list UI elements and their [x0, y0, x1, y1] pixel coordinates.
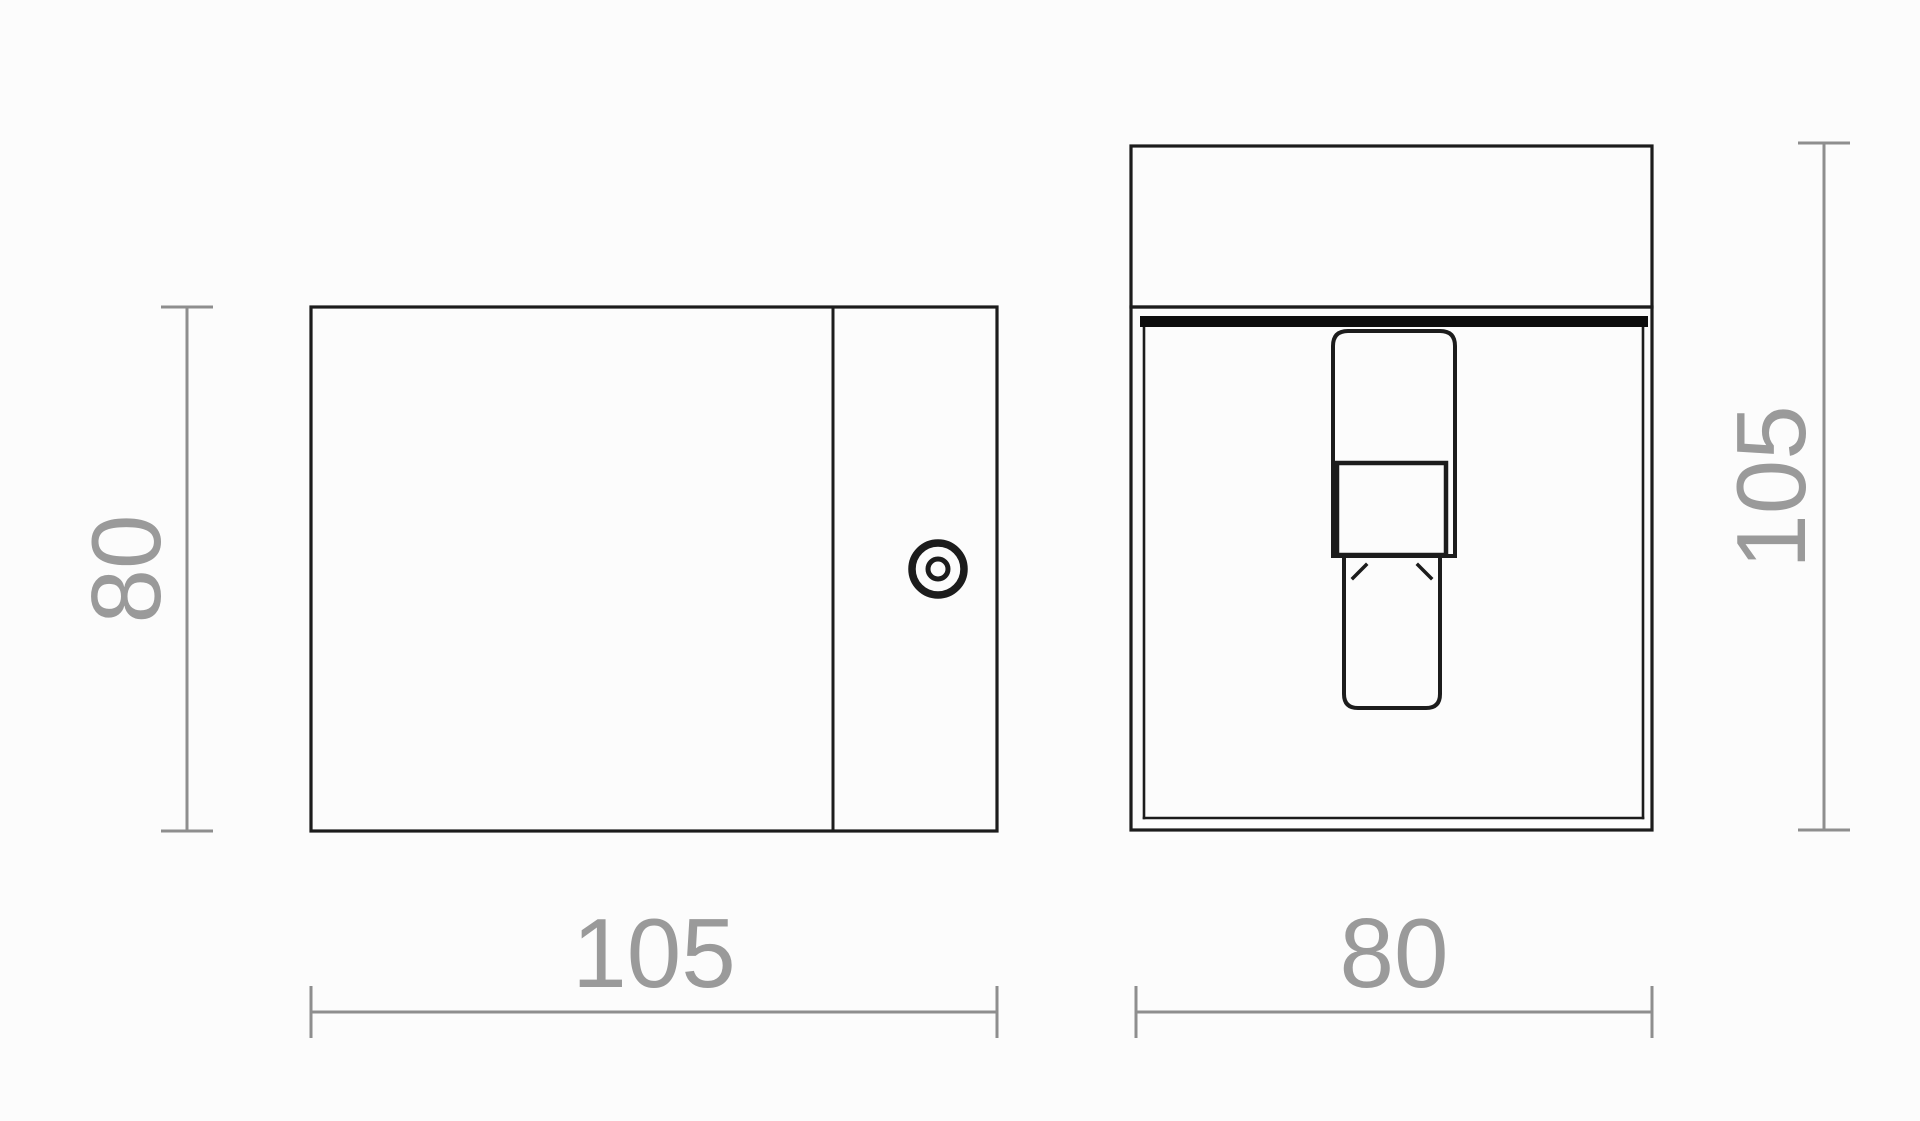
dim-front-height-label: 105 [1716, 405, 1826, 569]
front-view [1131, 146, 1652, 830]
dim-front-width-label: 80 [1339, 898, 1448, 1008]
screw-head-inner-socket [928, 559, 948, 579]
lamp-stem-outline [1344, 557, 1440, 708]
screw-head-outer-ring [912, 543, 964, 595]
dim-side-height-label: 80 [71, 514, 181, 623]
stem-mark-left [1353, 565, 1366, 578]
front-view-light-slot-bar [1140, 316, 1648, 327]
front-view-backplate-outline [1131, 146, 1652, 307]
bracket-arm-outline [1333, 331, 1455, 556]
bracket-clamp-outline [1337, 463, 1446, 555]
front-view-body-outline [1131, 307, 1652, 830]
side-view [311, 307, 997, 831]
dimension-drawing: 80 105 105 80 [0, 0, 1920, 1121]
dim-side-width-label: 105 [572, 898, 736, 1008]
drawing-canvas: 80 105 105 80 [0, 0, 1920, 1121]
stem-mark-right [1418, 565, 1431, 578]
side-view-body-outline [311, 307, 997, 831]
dimension-lines [161, 143, 1850, 1038]
dimension-labels: 80 105 105 80 [71, 405, 1826, 1008]
